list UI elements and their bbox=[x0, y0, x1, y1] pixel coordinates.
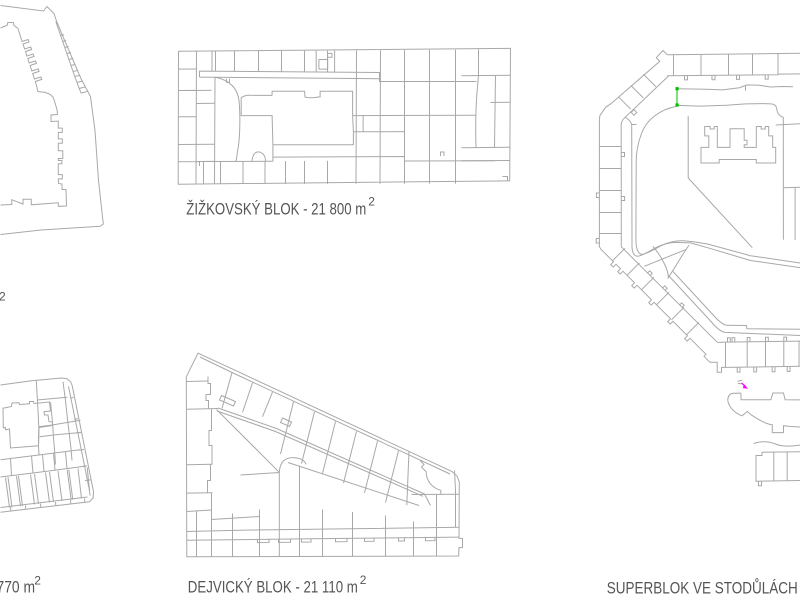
svg-text:SUPERBLOK VE STODŮLÁCH: SUPERBLOK VE STODŮLÁCH bbox=[607, 579, 798, 598]
svg-text:2: 2 bbox=[360, 573, 367, 587]
svg-text:DEJVICKÝ BLOK - 21 110 m: DEJVICKÝ BLOK - 21 110 m bbox=[188, 578, 358, 597]
svg-text:2: 2 bbox=[368, 194, 375, 208]
svg-text:ŽIŽKOVSKÝ BLOK - 21 800 m: ŽIŽKOVSKÝ BLOK - 21 800 m bbox=[186, 200, 366, 219]
svg-text:2: 2 bbox=[34, 574, 41, 588]
svg-text:2: 2 bbox=[0, 290, 6, 304]
svg-text:770 m: 770 m bbox=[0, 579, 35, 597]
